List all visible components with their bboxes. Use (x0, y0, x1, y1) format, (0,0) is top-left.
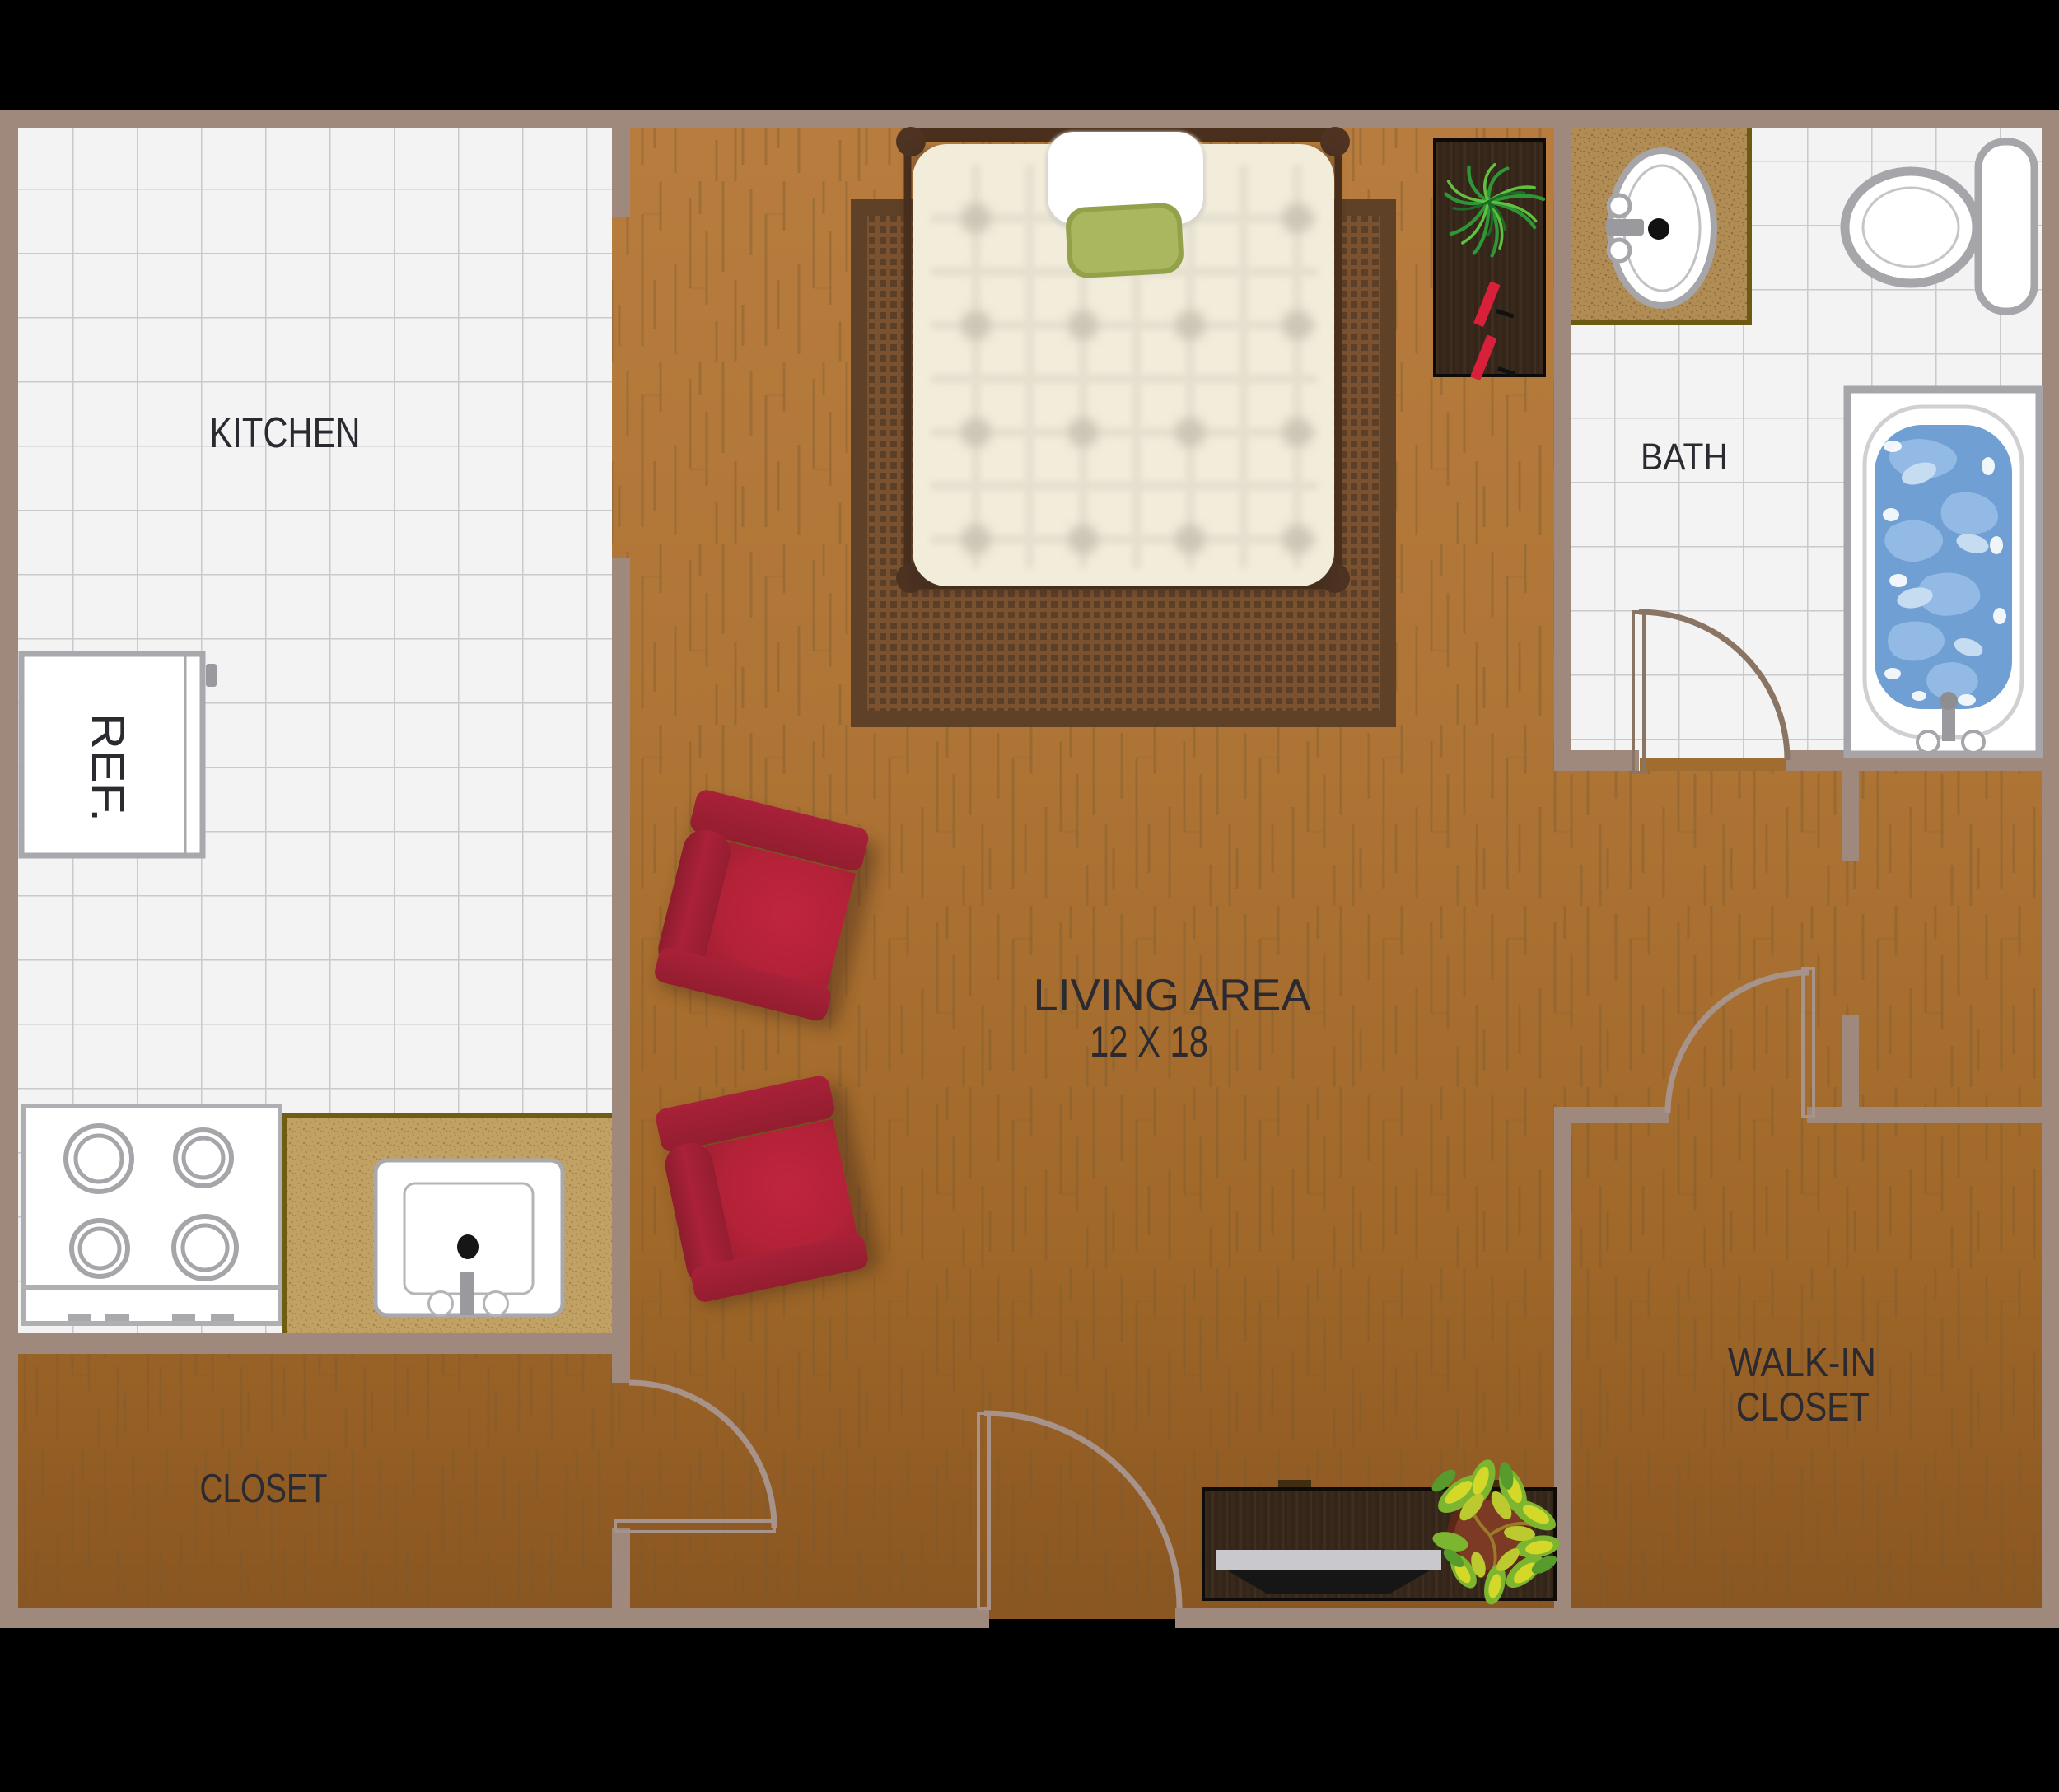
svg-text:REF.: REF. (82, 713, 134, 822)
svg-text:LIVING AREA: LIVING AREA (1034, 969, 1311, 1020)
svg-text:KITCHEN: KITCHEN (210, 409, 361, 457)
svg-text:CLOSET: CLOSET (200, 1467, 328, 1511)
svg-text:12 X 18: 12 X 18 (1090, 1018, 1208, 1066)
svg-text:CLOSET: CLOSET (1736, 1385, 1870, 1430)
svg-text:WALK-IN: WALK-IN (1728, 1341, 1876, 1385)
svg-text:BATH: BATH (1641, 436, 1728, 478)
